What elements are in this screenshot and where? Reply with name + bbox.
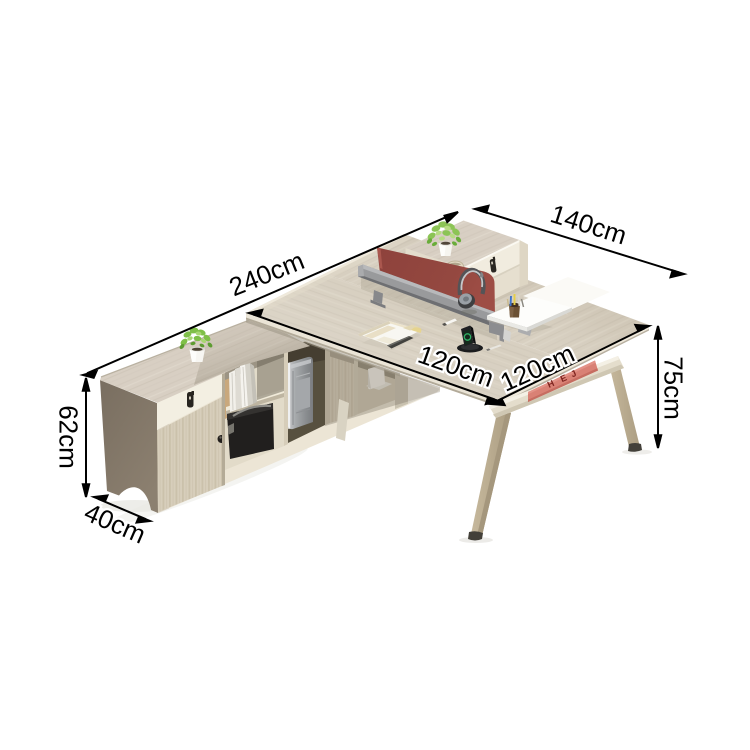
svg-text:62cm: 62cm (54, 405, 84, 469)
svg-text:75cm: 75cm (659, 356, 689, 420)
